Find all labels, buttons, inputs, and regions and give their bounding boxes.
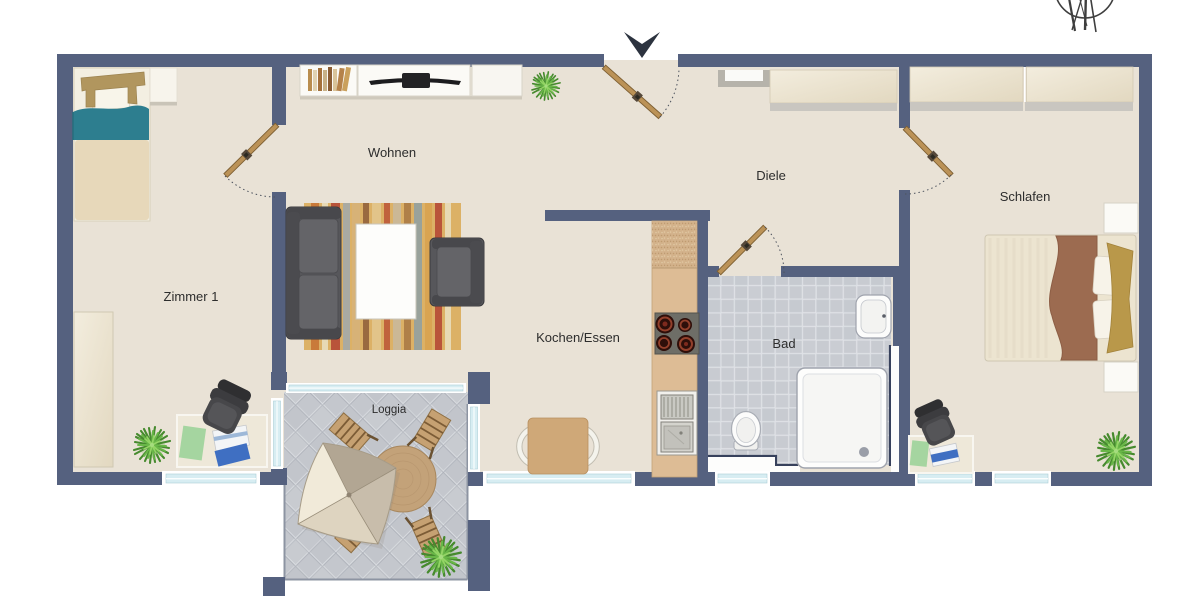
svg-text:Zimmer 1: Zimmer 1 xyxy=(164,289,219,304)
svg-text:Schlafen: Schlafen xyxy=(1000,189,1051,204)
svg-text:Loggia: Loggia xyxy=(372,404,407,416)
svg-text:Kochen/Essen: Kochen/Essen xyxy=(536,330,620,345)
svg-text:Bad: Bad xyxy=(772,336,795,351)
svg-text:Wohnen: Wohnen xyxy=(368,145,416,160)
svg-text:Diele: Diele xyxy=(756,168,786,183)
